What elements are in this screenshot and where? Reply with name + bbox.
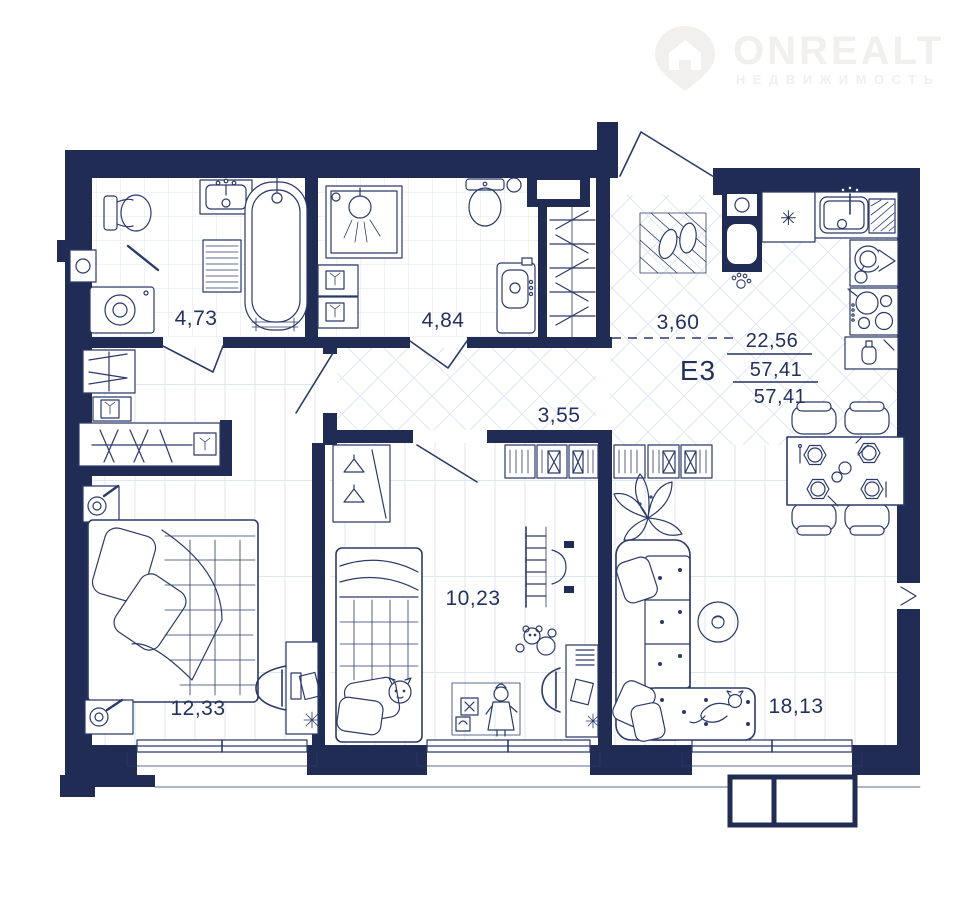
bedroom-wardrobe-tall	[83, 350, 135, 393]
dining-set	[787, 402, 904, 535]
corridor-area-label: 3,55	[538, 404, 581, 427]
logo-tagline-text: НЕДВИЖИМОСТЬ	[736, 72, 940, 87]
unit-living-area: 22,56	[746, 330, 799, 352]
kitchen-sink	[815, 186, 898, 238]
hall-closet-hangers	[550, 207, 595, 340]
washing-machine	[90, 287, 154, 333]
kids-window	[417, 740, 600, 766]
unit-total-area: 57,41	[750, 359, 803, 381]
balcony	[730, 777, 855, 825]
vent-shaft	[537, 180, 580, 199]
kitchen-boiler	[727, 224, 757, 264]
bathtub	[245, 178, 307, 331]
fridge-snowflake-icon: ✳	[780, 208, 797, 230]
kids-area-label: 10,23	[445, 587, 500, 610]
floor-plan-page: ONREALT НЕДВИЖИМОСТЬ	[0, 0, 960, 910]
kids-wardrobe	[333, 445, 390, 522]
bedroom-window	[127, 740, 317, 766]
small-plant-icon	[586, 714, 600, 728]
kids-cabinets	[505, 445, 598, 478]
unit-label: Е3	[680, 355, 716, 386]
windows	[127, 740, 862, 766]
kettle-cabinet	[850, 240, 898, 286]
bathroom-second-area-label: 4,84	[422, 309, 465, 332]
kitchen-column-box	[727, 194, 757, 216]
floor-plan-svg: ONREALT НЕДВИЖИМОСТЬ	[0, 0, 960, 910]
bedroom-bed	[88, 520, 258, 702]
kids-bed	[336, 548, 422, 742]
tv-cabinets-living	[614, 445, 712, 478]
wall-sink-small	[70, 250, 96, 282]
bedroom-area-label: 12,33	[170, 697, 225, 720]
kids-pillow	[336, 696, 384, 736]
wall-notch	[897, 583, 920, 609]
living-window	[682, 740, 862, 766]
logo-brand-text: ONREALT	[733, 29, 944, 73]
vanity-sink	[497, 258, 535, 333]
lower-cabinet	[845, 337, 898, 369]
sink	[200, 179, 252, 214]
bathroom-main-area-label: 4,73	[175, 307, 218, 330]
living-area-label: 18,13	[768, 695, 823, 718]
bedroom-plant-box	[93, 397, 131, 421]
unit-total-area-reduced: 57,41	[754, 386, 807, 408]
towel-radiator	[203, 240, 241, 292]
nightstand-bottom	[85, 700, 133, 734]
shower	[326, 186, 402, 258]
hob	[848, 288, 898, 335]
hallway-area-label: 3,60	[657, 311, 700, 334]
bedroom-wardrobe-low	[79, 423, 220, 466]
entrance-door-swing	[620, 132, 714, 177]
brand-logo: ONREALT НЕДВИЖИМОСТЬ	[655, 26, 944, 91]
small-flower-icon	[304, 712, 320, 728]
bath-cabinets	[318, 265, 358, 328]
nightstand-top	[83, 486, 119, 522]
